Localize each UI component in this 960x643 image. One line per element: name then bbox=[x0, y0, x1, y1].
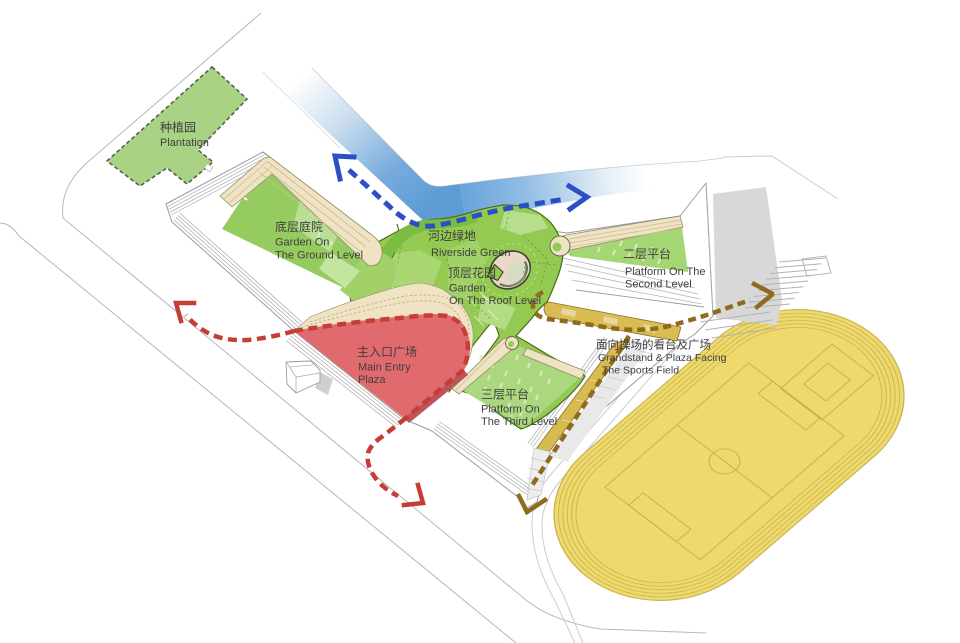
svg-text:顶层花园: 顶层花园 bbox=[448, 265, 496, 280]
svg-text:河边绿地: 河边绿地 bbox=[428, 228, 476, 243]
svg-text:The Sports Field: The Sports Field bbox=[602, 365, 679, 377]
svg-text:Plantation: Plantation bbox=[160, 137, 209, 149]
svg-text:三层平台: 三层平台 bbox=[481, 387, 529, 402]
svg-text:Riverside Green: Riverside Green bbox=[431, 247, 510, 259]
svg-text:面向操场的看台及广场: 面向操场的看台及广场 bbox=[596, 338, 711, 352]
svg-text:Platform On The: Platform On The bbox=[625, 266, 706, 278]
svg-text:Garden On: Garden On bbox=[275, 237, 329, 249]
svg-text:Garden: Garden bbox=[449, 283, 486, 295]
svg-text:底层庭院: 底层庭院 bbox=[275, 219, 323, 234]
svg-text:Plaza: Plaza bbox=[358, 374, 386, 386]
svg-text:二层平台: 二层平台 bbox=[623, 246, 671, 261]
svg-text:主入口广场: 主入口广场 bbox=[357, 345, 417, 359]
svg-text:The Ground Level: The Ground Level bbox=[275, 250, 363, 262]
svg-text:The Third Level: The Third Level bbox=[481, 416, 557, 428]
svg-text:On The Roof Level: On The Roof Level bbox=[449, 295, 541, 307]
svg-text:Second Level: Second Level bbox=[625, 279, 692, 291]
svg-text:Platform On: Platform On bbox=[481, 404, 540, 416]
svg-text:Grandstand & Plaza Facing: Grandstand & Plaza Facing bbox=[598, 352, 727, 364]
svg-text:种植园: 种植园 bbox=[160, 120, 196, 135]
svg-text:Main Entry: Main Entry bbox=[358, 362, 411, 374]
